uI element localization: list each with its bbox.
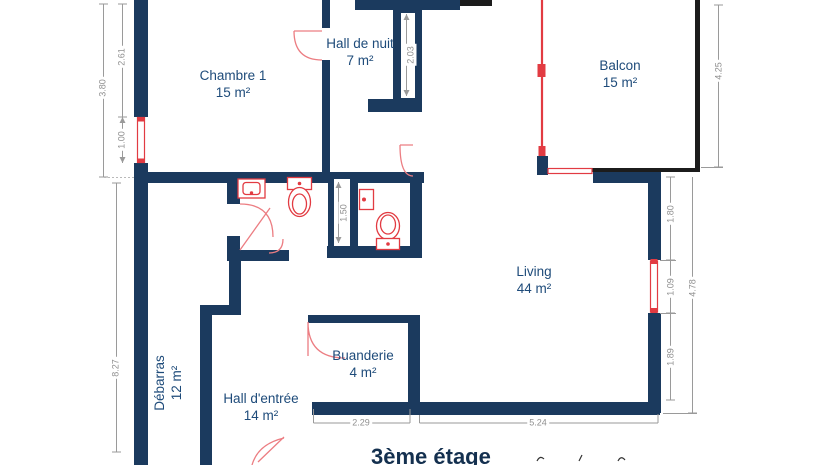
wall-living-right-upper	[648, 172, 661, 260]
room-label-buanderie: Buanderie 4 m²	[303, 348, 423, 382]
room-area: 44 m²	[474, 281, 594, 298]
wall-bathrooms-top	[134, 172, 424, 183]
cropped-text-fragment	[537, 455, 625, 461]
room-label-hall-entree: Hall d'entrée 14 m²	[201, 391, 321, 425]
wall-chambre-hall-upper	[322, 0, 330, 28]
room-area: 14 m²	[201, 408, 321, 425]
room-name: Chambre 1	[163, 68, 303, 85]
dim-living-upper: 1.80	[666, 203, 677, 225]
room-name: Buanderie	[303, 348, 423, 365]
room-label-chambre1: Chambre 1 15 m²	[163, 68, 303, 102]
room-label-debarras: Débarras 12 m²	[152, 328, 188, 438]
black-top-bar	[460, 0, 492, 6]
sink-icon	[360, 190, 374, 210]
dim-living-lower: 1.89	[666, 346, 677, 368]
toilet-icon	[288, 178, 312, 217]
room-area: 15 m²	[560, 75, 680, 92]
dim-left-upper: 2.61	[117, 46, 128, 68]
dim-bath-core: 1.50	[339, 202, 350, 224]
dim-balcony-right: 4.25	[714, 60, 725, 82]
window-living	[651, 261, 658, 312]
room-name: Hall d'entrée	[201, 391, 321, 408]
balcony-bottom-wall	[590, 168, 700, 172]
room-area: 4 m²	[303, 365, 423, 382]
balcony-right-wall	[695, 0, 700, 172]
plumbing-fixtures	[238, 178, 400, 250]
room-name: Living	[474, 264, 594, 281]
room-name: Hall de nuit	[299, 36, 421, 53]
room-area: 7 m²	[299, 53, 421, 70]
dim-left-lower: 8.27	[111, 357, 122, 379]
room-name: Débarras	[152, 328, 169, 438]
wall-bath2-bottom	[327, 246, 422, 258]
wall-bath2-right	[410, 172, 422, 257]
dim-bottom-living: 5.24	[527, 418, 549, 429]
wall-chambre-hall-lower	[322, 60, 330, 183]
dim-corridor-wall: 2.03	[406, 44, 417, 66]
wall-left-upper	[134, 0, 148, 117]
wall-buanderie-top	[308, 315, 420, 323]
dim-left-overall: 3.80	[98, 77, 109, 99]
wall-hall-left-lower	[200, 315, 212, 465]
floor-title: 3ème étage	[371, 444, 491, 465]
dim-living-overall: 4.78	[688, 277, 699, 299]
door-hall-entree	[252, 437, 284, 465]
window-balcony-door	[548, 169, 592, 174]
door-bath1	[240, 204, 273, 250]
wall-living-right-lower	[648, 313, 661, 413]
wall-corridor-foot	[368, 99, 422, 112]
wall-bath1-left-upper	[227, 183, 240, 204]
room-area: 12 m²	[169, 328, 186, 438]
wall-left-lower	[134, 183, 148, 465]
dim-bottom-buanderie: 2.29	[350, 418, 372, 429]
window-chambre1	[138, 118, 145, 163]
dim-left-window: 1.00	[117, 129, 128, 151]
wall-hall-step	[200, 305, 241, 315]
room-area: 15 m²	[163, 85, 303, 102]
room-label-balcon: Balcon 15 m²	[560, 58, 680, 92]
room-label-hall-de-nuit: Hall de nuit 7 m²	[299, 36, 421, 70]
room-label-living: Living 44 m²	[474, 264, 594, 298]
wall-living-bottom	[312, 402, 660, 415]
dim-living-window: 1.09	[666, 276, 677, 298]
room-name: Balcon	[560, 58, 680, 75]
wall-balcony-corner	[537, 156, 548, 175]
toilet-icon	[377, 213, 400, 250]
floor-plan-canvas: Chambre 1 15 m² Hall de nuit 7 m² Balcon…	[0, 0, 820, 465]
